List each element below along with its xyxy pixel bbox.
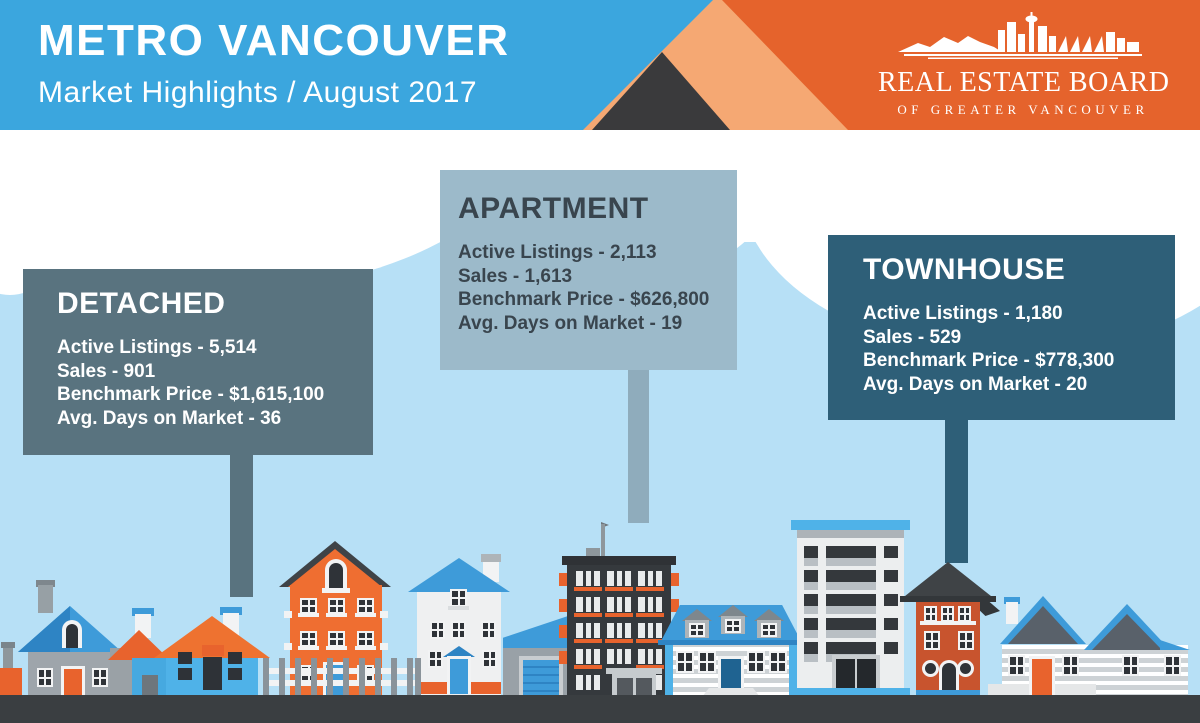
townhouse-benchmark-price: Benchmark Price - $778,300 — [863, 349, 1175, 373]
townhouse-avg-days: Avg. Days on Market - 20 — [863, 373, 1175, 397]
townhouse-sales: Sales - 529 — [863, 326, 1175, 350]
logo-tagline-text: OF GREATER VANCOUVER — [878, 102, 1168, 118]
picket-fence — [263, 658, 421, 695]
vancouver-skyline-icon — [898, 12, 1148, 60]
detached-stats-card: DETACHED Active Listings - 5,514 Sales -… — [23, 269, 373, 455]
page-subtitle: Market Highlights / August 2017 — [38, 76, 477, 110]
infographic-page: DETACHED Active Listings - 5,514 Sales -… — [0, 0, 1200, 723]
townhouse-active-listings: Active Listings - 1,180 — [863, 302, 1175, 326]
apartment-sales: Sales - 1,613 — [458, 265, 737, 289]
page-title: METRO VANCOUVER — [38, 16, 509, 66]
apartment-stats-card: APARTMENT Active Listings - 2,113 Sales … — [440, 170, 737, 370]
logo-name-text: REAL ESTATE BOARD — [878, 67, 1168, 99]
detached-sales: Sales - 901 — [57, 360, 373, 384]
rebgv-logo: REAL ESTATE BOARD OF GREATER VANCOUVER — [878, 12, 1168, 122]
detached-avg-days: Avg. Days on Market - 36 — [57, 407, 373, 431]
street-ground — [0, 695, 1200, 723]
townhouse-stats-card: TOWNHOUSE Active Listings - 1,180 Sales … — [828, 235, 1175, 420]
detached-card-title: DETACHED — [57, 287, 373, 321]
apartment-active-listings: Active Listings - 2,113 — [458, 241, 737, 265]
apartment-benchmark-price: Benchmark Price - $626,800 — [458, 288, 737, 312]
page-header: METRO VANCOUVER Market Highlights / Augu… — [0, 0, 1200, 130]
detached-active-listings: Active Listings - 5,514 — [57, 336, 373, 360]
detached-benchmark-price: Benchmark Price - $1,615,100 — [57, 383, 373, 407]
apartment-avg-days: Avg. Days on Market - 19 — [458, 312, 737, 336]
apartment-card-title: APARTMENT — [458, 192, 737, 226]
townhouse-card-title: TOWNHOUSE — [863, 253, 1175, 287]
